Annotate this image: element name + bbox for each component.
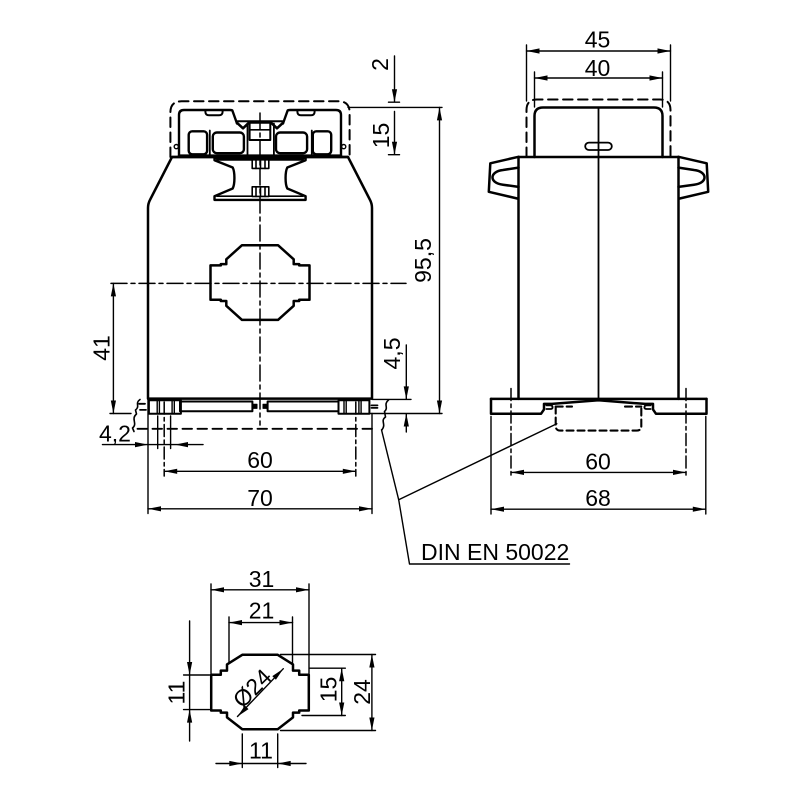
svg-text:41: 41 [88, 335, 114, 361]
svg-text:11: 11 [163, 681, 189, 705]
svg-text:31: 31 [249, 566, 275, 592]
svg-text:45: 45 [585, 26, 611, 52]
svg-text:15: 15 [368, 123, 394, 149]
svg-text:60: 60 [585, 448, 611, 474]
svg-text:95,5: 95,5 [410, 238, 436, 283]
svg-text:40: 40 [585, 55, 611, 81]
svg-text:2: 2 [367, 58, 393, 71]
svg-text:DIN EN 50022: DIN EN 50022 [421, 539, 569, 565]
svg-text:4,5: 4,5 [379, 338, 405, 370]
svg-text:21: 21 [249, 597, 275, 623]
svg-text:11: 11 [249, 737, 273, 763]
svg-text:24: 24 [349, 679, 375, 705]
svg-text:15: 15 [315, 677, 341, 703]
svg-text:Ø24: Ø24 [228, 663, 277, 712]
svg-text:68: 68 [585, 485, 611, 511]
svg-text:60: 60 [247, 447, 273, 473]
svg-text:70: 70 [247, 485, 273, 511]
svg-text:4,2: 4,2 [99, 420, 131, 446]
